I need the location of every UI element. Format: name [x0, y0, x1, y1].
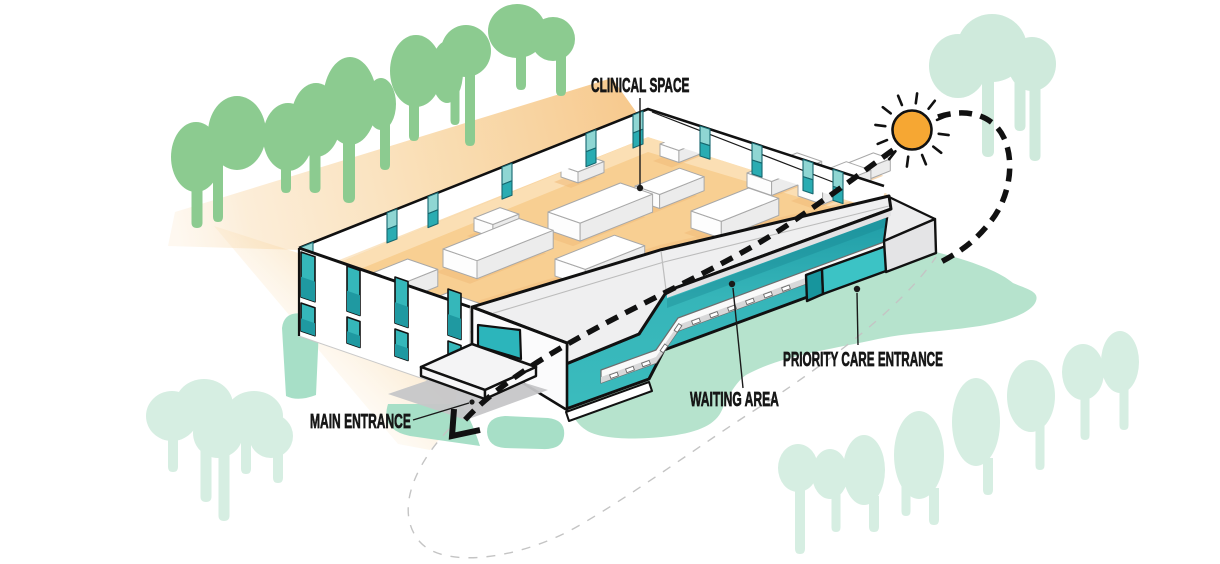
svg-text:CLINICAL SPACE: CLINICAL SPACE — [591, 74, 689, 97]
svg-text:MAIN ENTRANCE: MAIN ENTRANCE — [310, 410, 411, 433]
svg-text:WAITING AREA: WAITING AREA — [690, 388, 779, 411]
svg-text:PRIORITY CARE ENTRANCE: PRIORITY CARE ENTRANCE — [783, 348, 943, 371]
